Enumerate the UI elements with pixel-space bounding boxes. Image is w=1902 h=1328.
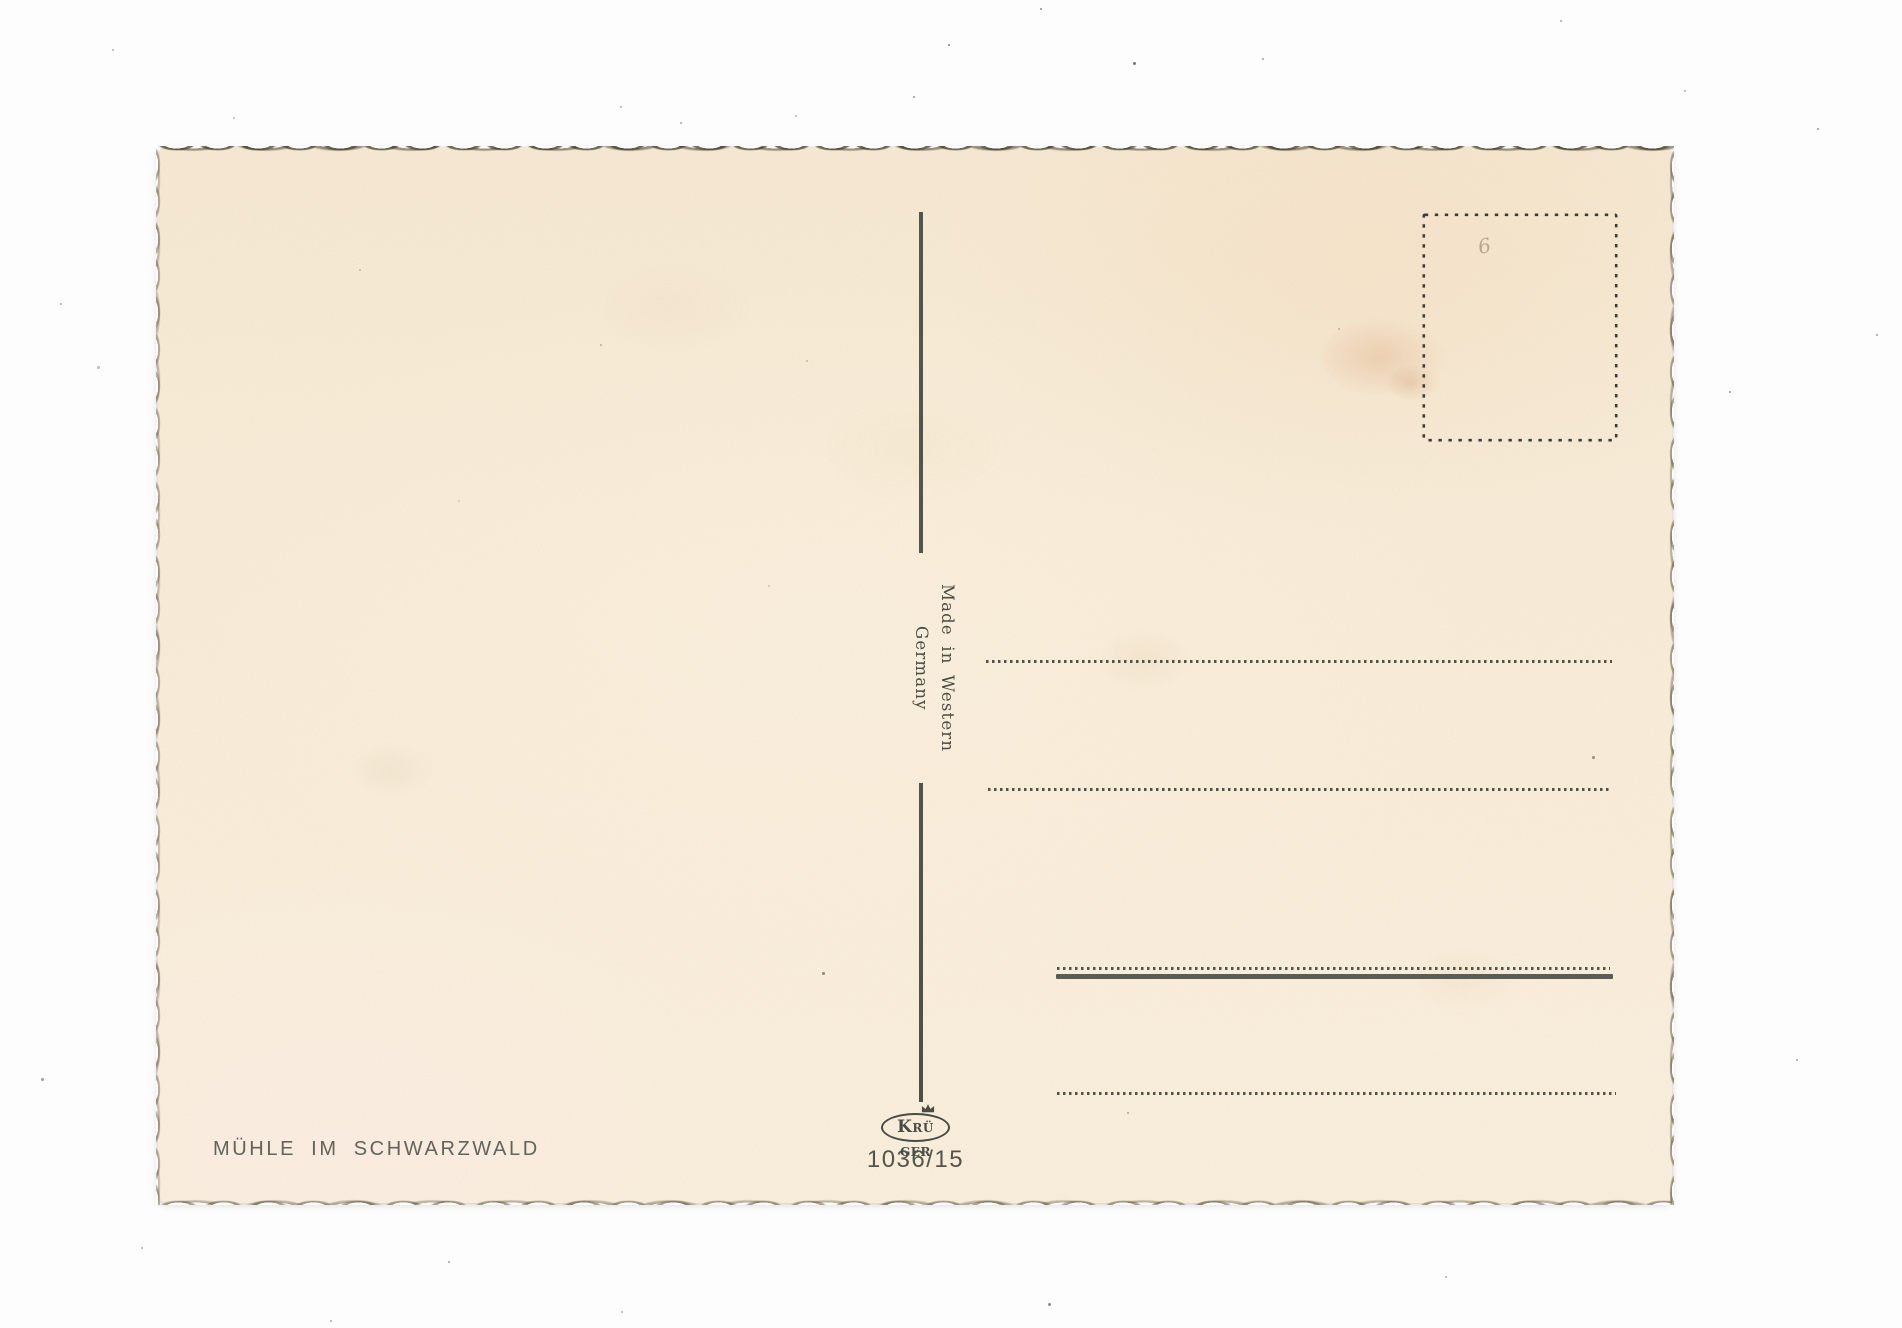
publisher-logo: KRÜGER 1036/15 [848,1101,983,1174]
dust-speck [1262,58,1264,60]
dust-speck [621,1311,623,1313]
paper-speck [822,972,825,975]
dust-speck [448,1261,450,1263]
address-line-3 [1057,967,1610,970]
address-line-2 [988,788,1612,791]
deckle-edge-top [156,146,1674,161]
made-in-text: Made in Western Germany [908,553,960,783]
dust-speck [1048,1303,1051,1306]
dust-speck [680,122,682,124]
publisher-name-u: Ü [923,1116,934,1140]
dust-speck [600,344,602,346]
postcard-back: Made in Western Germany 6 MÜHLE IM SCHWA… [158,148,1672,1203]
dust-speck [1560,20,1562,22]
dust-speck [233,117,235,119]
dust-speck [913,96,915,98]
dust-speck [97,366,100,369]
address-line-4 [1057,1092,1616,1095]
dust-speck [1876,334,1878,336]
postcard-caption: MÜHLE IM SCHWARZWALD [213,1138,540,1161]
publisher-logo-oval: KRÜGER [881,1113,950,1142]
deckle-edge-right [1661,146,1674,1205]
address-separator-line [1056,974,1613,979]
dust-speck [1133,62,1136,65]
dust-speck [141,1247,143,1249]
dust-speck [1445,1276,1447,1278]
deckle-edge-bottom [156,1190,1674,1205]
dust-speck [112,49,114,51]
dust-speck [1684,90,1686,92]
dust-speck [60,303,62,305]
paper-speck [1592,756,1595,759]
dust-speck [1040,8,1042,10]
dust-speck [359,269,361,271]
address-line-1 [986,660,1612,663]
paper-speck [458,500,460,502]
publisher-name-ger: GER [900,1145,931,1159]
dust-speck [1796,1059,1798,1061]
dust-speck [806,360,808,362]
crown-icon [921,1103,936,1113]
dust-speck [1729,391,1731,393]
dust-speck [795,115,797,117]
paper-speck [1338,328,1340,330]
dust-speck [41,1078,44,1081]
paper-speck [1127,1112,1129,1114]
dust-speck [330,1320,332,1322]
publisher-name-k: K [897,1117,912,1137]
stamp-box-outline [1424,215,1616,440]
dust-speck [1817,128,1819,130]
scanned-postcard-page: Made in Western Germany 6 MÜHLE IM SCHWA… [0,0,1902,1328]
dust-speck [948,44,950,46]
stamp-box [1422,213,1618,442]
paper-speck [768,585,770,587]
publisher-name-r: R [912,1121,922,1135]
stain-mark [604,264,752,352]
deckle-edge-left [156,146,169,1205]
divider-line-top [919,212,923,553]
divider-line-bottom [919,783,923,1102]
stain-mark [824,394,1012,502]
dust-speck [620,106,622,108]
publisher-name-u-glyph: Ü [923,1121,934,1135]
stain-mark [353,742,437,798]
